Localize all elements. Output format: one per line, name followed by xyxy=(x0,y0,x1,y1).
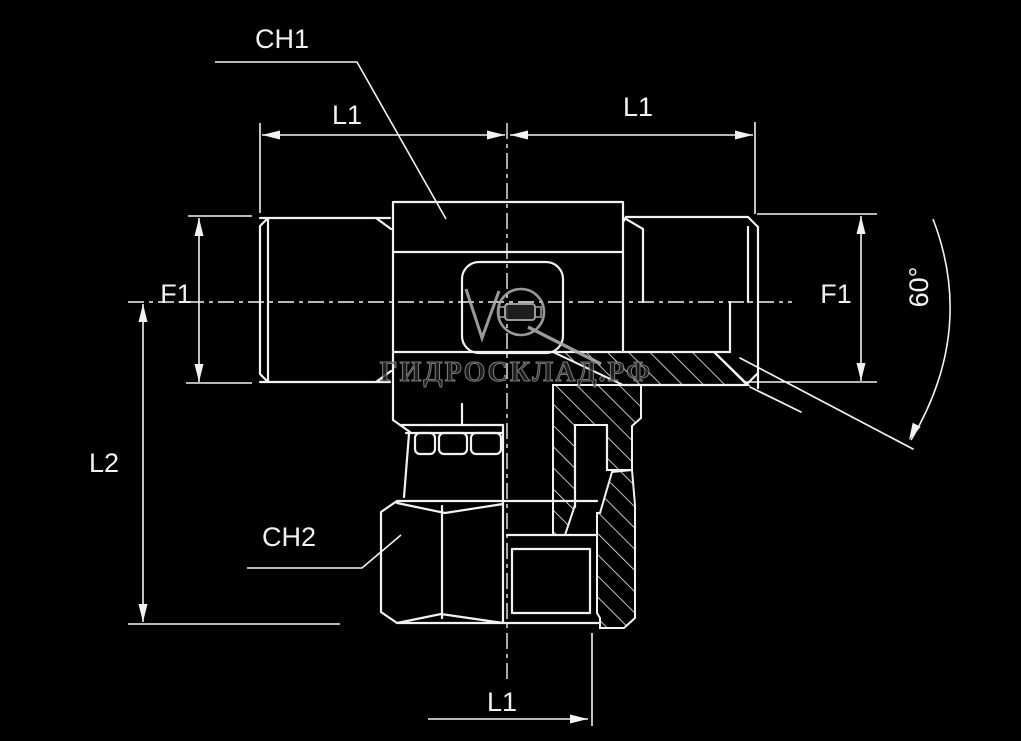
serration-tab xyxy=(471,433,501,454)
serration-tab xyxy=(415,433,435,454)
ext-lines-f1-left xyxy=(186,216,252,383)
technical-drawing-canvas: CH1 L1 L1 F1 F1 L2 CH2 L1 60° ГИДРОСКЛАД… xyxy=(0,0,1021,741)
label-l1-top-right: L1 xyxy=(623,92,653,122)
nut-wall-section xyxy=(597,470,635,628)
label-ch2: CH2 xyxy=(262,522,316,552)
leader-ch1 xyxy=(215,62,446,219)
centerlines xyxy=(128,123,792,680)
angle-arc-60 xyxy=(911,219,950,440)
section-hatching xyxy=(553,352,748,628)
dimension-arrowheads xyxy=(139,131,921,724)
label-ch1: CH1 xyxy=(255,24,309,54)
dimensions xyxy=(128,62,950,726)
serration-tab xyxy=(439,433,467,454)
label-l1-top-left: L1 xyxy=(332,100,362,130)
watermark-text: ГИДРОСКЛАД.РФ xyxy=(380,357,652,388)
watermark: ГИДРОСКЛАД.РФ xyxy=(380,289,652,388)
left-male-stud xyxy=(260,218,391,382)
cone-construction-lines xyxy=(740,358,913,449)
label-f1-left: F1 xyxy=(160,279,192,309)
branch-lower xyxy=(393,404,503,503)
label-f1-right: F1 xyxy=(820,279,852,309)
ext-lines-f1-right xyxy=(744,214,877,382)
label-l1-bottom: L1 xyxy=(487,687,517,717)
tee-fitting-drawing: CH1 L1 L1 F1 F1 L2 CH2 L1 60° ГИДРОСКЛАД… xyxy=(0,0,1021,741)
label-l2: L2 xyxy=(89,448,119,478)
label-angle-60deg: 60° xyxy=(904,267,934,308)
